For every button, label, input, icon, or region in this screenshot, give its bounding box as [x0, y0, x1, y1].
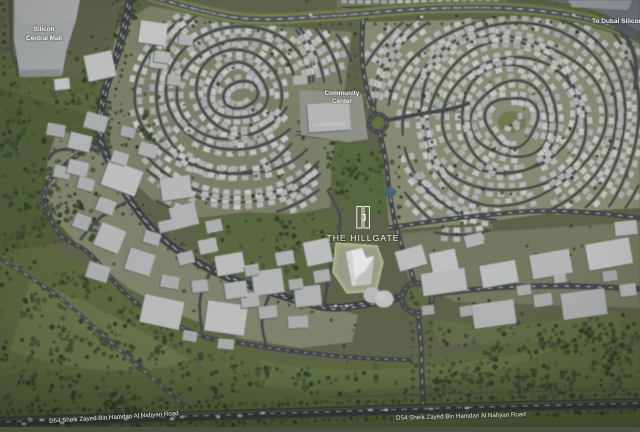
- svg-text:Silicon: Silicon: [34, 26, 55, 33]
- svg-text:THE HILLGATE: THE HILLGATE: [326, 233, 399, 243]
- svg-text:Community: Community: [325, 90, 360, 97]
- svg-text:Central Mall: Central Mall: [26, 35, 62, 42]
- svg-text:To Dubai Silicon Oas: To Dubai Silicon Oas: [592, 18, 640, 25]
- svg-text:Center: Center: [332, 98, 352, 105]
